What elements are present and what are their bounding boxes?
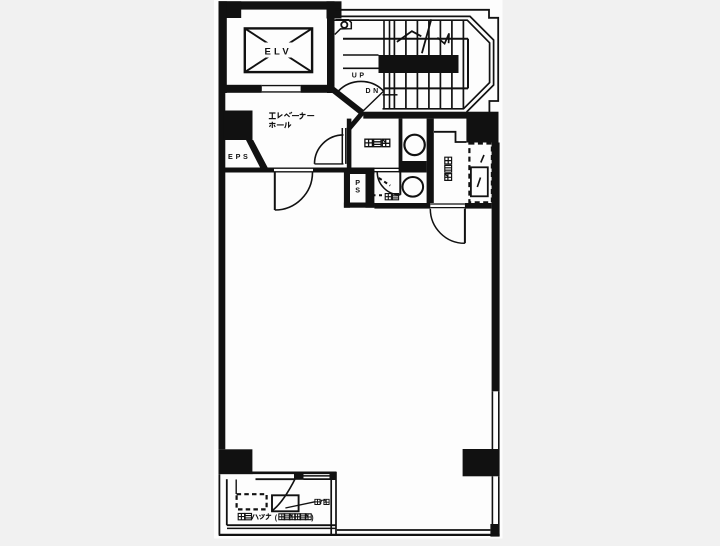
svg-text:): )	[311, 515, 313, 522]
svg-text:U P: U P	[352, 73, 365, 80]
svg-text:ELV: ELV	[265, 46, 292, 57]
svg-text:S: S	[355, 186, 360, 195]
svg-text:E P S: E P S	[228, 152, 248, 161]
svg-text:D N: D N	[366, 88, 379, 95]
